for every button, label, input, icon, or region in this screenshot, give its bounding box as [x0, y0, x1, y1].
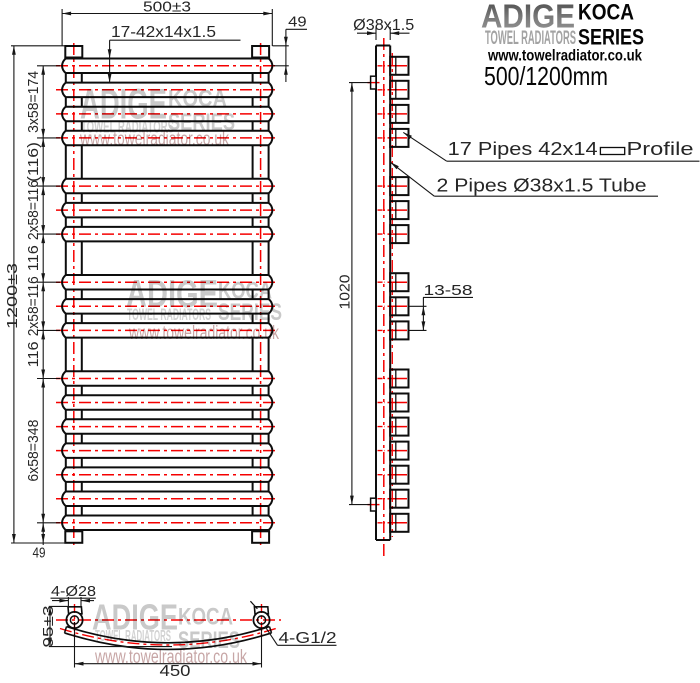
svg-text:KOCA: KOCA	[578, 0, 634, 25]
svg-text:2 Pipes Ø38x1.5 Tube: 2 Pipes Ø38x1.5 Tube	[437, 176, 647, 196]
svg-text:SERIES: SERIES	[578, 24, 644, 49]
svg-text:4-Ø28: 4-Ø28	[51, 583, 96, 600]
svg-text:95±3: 95±3	[40, 606, 57, 648]
svg-text:13-58: 13-58	[424, 282, 473, 299]
svg-text:(116): (116)	[25, 142, 42, 182]
svg-text:116: 116	[25, 341, 42, 367]
svg-text:2x58=116: 2x58=116	[25, 276, 42, 336]
svg-text:2x58=116: 2x58=116	[25, 180, 42, 240]
svg-text:1200±3: 1200±3	[4, 263, 21, 329]
svg-text:TOWEL RADIATORS: TOWEL RADIATORS	[127, 306, 211, 324]
svg-text:17 Pipes 42x14: 17 Pipes 42x14	[448, 139, 598, 159]
svg-text:www.towelradiator.co.uk: www.towelradiator.co.uk	[79, 129, 229, 150]
svg-text:TOWEL RADIATORS: TOWEL RADIATORS	[485, 27, 576, 49]
svg-text:49: 49	[288, 14, 307, 31]
svg-text:17-42x14x1.5: 17-42x14x1.5	[111, 24, 216, 41]
svg-text:500±3: 500±3	[143, 0, 191, 16]
svg-text:116: 116	[25, 245, 42, 271]
svg-text:Profile: Profile	[627, 139, 694, 159]
svg-text:TOWEL RADIATORS: TOWEL RADIATORS	[95, 628, 171, 645]
svg-text:1020: 1020	[337, 275, 354, 310]
svg-text:3x58=174: 3x58=174	[25, 71, 42, 133]
svg-text:500/1200mm: 500/1200mm	[484, 61, 608, 91]
svg-text:49: 49	[33, 545, 46, 562]
svg-text:www.towelradiator.co.uk: www.towelradiator.co.uk	[128, 323, 279, 344]
svg-text:6x58=348: 6x58=348	[25, 420, 42, 482]
svg-text:www.towelradiator.co.uk: www.towelradiator.co.uk	[94, 647, 247, 668]
svg-text:4-G1/2: 4-G1/2	[279, 630, 337, 647]
svg-text:Ø38x1.5: Ø38x1.5	[353, 17, 414, 34]
svg-text:SERIES: SERIES	[218, 299, 282, 326]
